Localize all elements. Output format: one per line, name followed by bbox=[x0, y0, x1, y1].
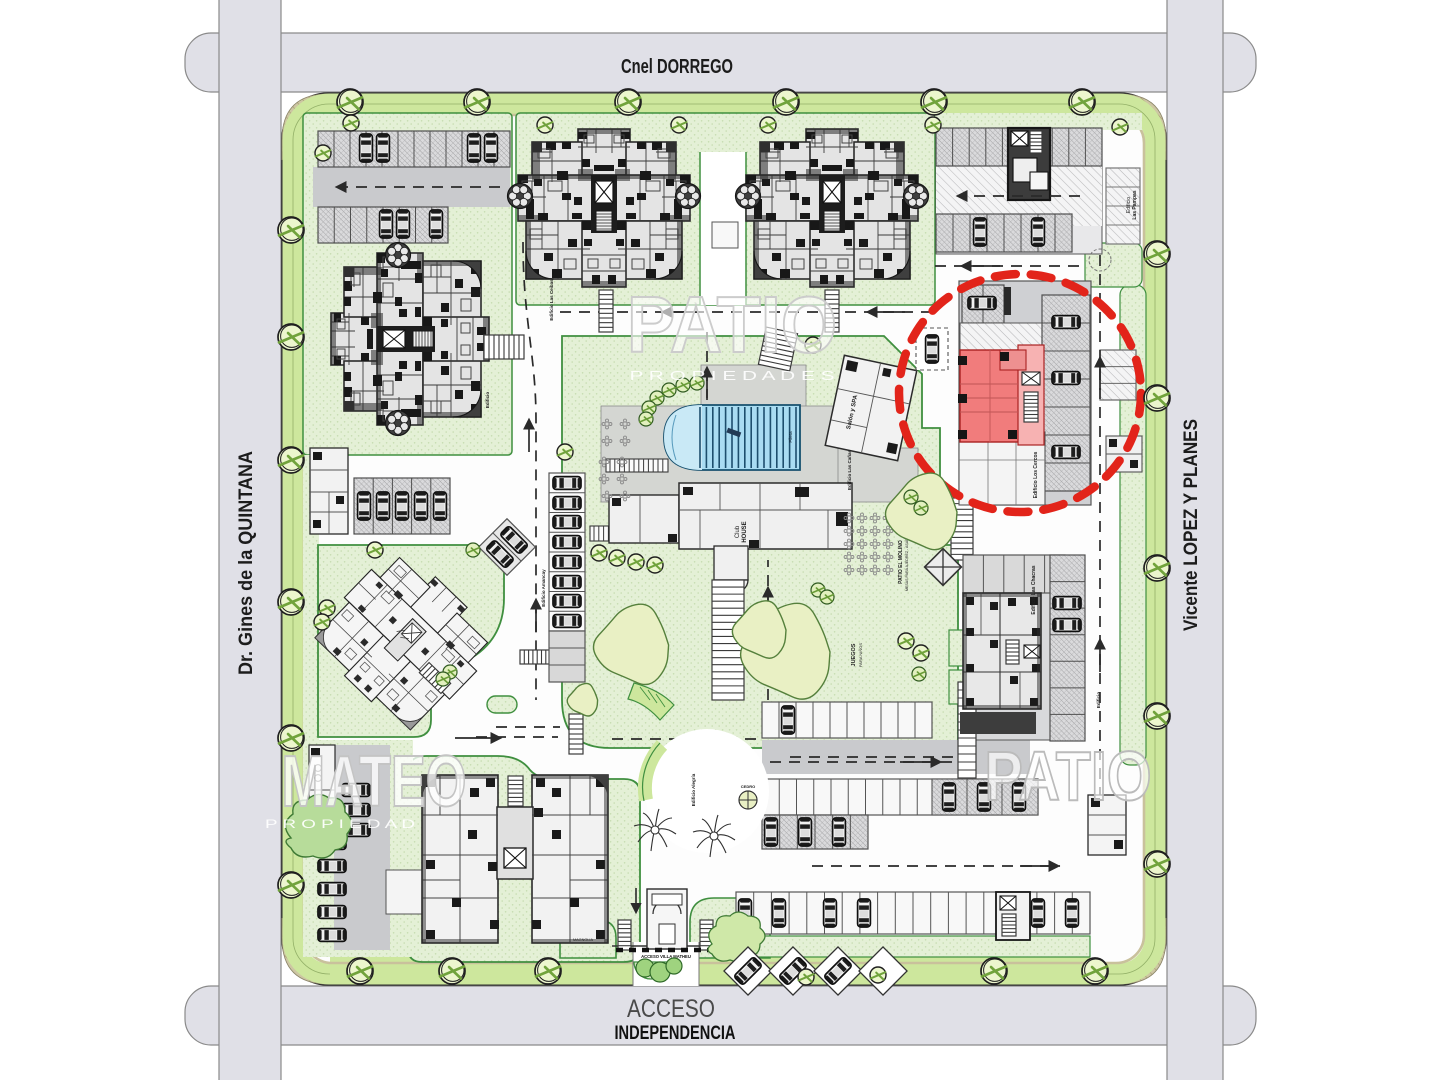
svg-text:Edificio Los Cercos: Edificio Los Cercos bbox=[1033, 451, 1039, 498]
svg-text:Cnel DORREGO: Cnel DORREGO bbox=[621, 56, 733, 78]
svg-text:Edificio Amancay: Edificio Amancay bbox=[541, 569, 546, 607]
svg-text:Edificio: Edificio bbox=[1096, 692, 1101, 709]
svg-text:Edificio Las Chacras: Edificio Las Chacras bbox=[1031, 565, 1037, 614]
svg-text:MESAS PARA AJEDREZ - ASADOS: MESAS PARA AJEDREZ - ASADOS bbox=[905, 532, 909, 591]
svg-text:HOUSE: HOUSE bbox=[742, 521, 748, 542]
svg-text:INDEPENDENCIA: INDEPENDENCIA bbox=[615, 1023, 736, 1044]
svg-text:Edificio Las Ceibas: Edificio Las Ceibas bbox=[549, 279, 554, 321]
svg-text:CEDRO: CEDRO bbox=[741, 784, 755, 789]
svg-text:P R O P I E D A D E S: P R O P I E D A D E S bbox=[630, 368, 836, 383]
svg-text:P R O P I E D A D: P R O P I E D A D bbox=[265, 817, 416, 831]
svg-text:Club: Club bbox=[735, 525, 741, 538]
svg-text:PATIO EL MOLINO: PATIO EL MOLINO bbox=[898, 540, 904, 584]
svg-text:PATIO: PATIO bbox=[985, 737, 1152, 815]
svg-text:PARA NIÑOS: PARA NIÑOS bbox=[858, 643, 863, 667]
svg-text:PATIO: PATIO bbox=[627, 280, 837, 369]
svg-text:Pileta: Pileta bbox=[788, 431, 793, 443]
svg-text:Edificio Las Cañas: Edificio Las Cañas bbox=[847, 449, 852, 490]
svg-text:Las Pampas: Las Pampas bbox=[1132, 190, 1138, 219]
svg-text:JUEGOS: JUEGOS bbox=[851, 643, 857, 666]
svg-text:Edificio Alegría: Edificio Alegría bbox=[691, 773, 696, 806]
svg-text:ACCESO: ACCESO bbox=[627, 995, 715, 1023]
svg-text:ACCESO VILLA MATHEU: ACCESO VILLA MATHEU bbox=[641, 954, 691, 959]
svg-text:Vicente LOPEZ Y PLANES: Vicente LOPEZ Y PLANES bbox=[1181, 419, 1202, 631]
svg-text:Edificio: Edificio bbox=[485, 392, 490, 409]
svg-text:MAGNOLIA: MAGNOLIA bbox=[573, 938, 594, 942]
svg-text:MATEO: MATEO bbox=[282, 742, 467, 822]
svg-text:Dr. Gines de la QUINTANA: Dr. Gines de la QUINTANA bbox=[236, 451, 257, 675]
